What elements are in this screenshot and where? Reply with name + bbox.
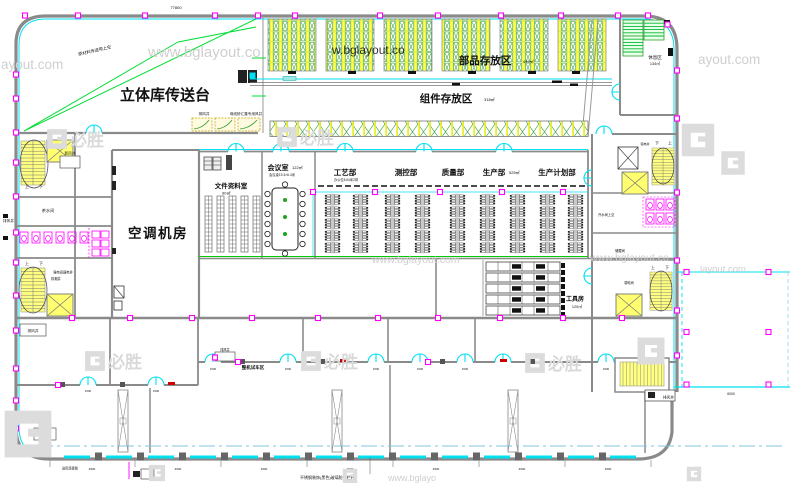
dim-door: 1500 bbox=[462, 367, 469, 371]
label-dept-production-area: 525㎡ bbox=[509, 169, 520, 175]
label-tool-room-area: 120㎡ bbox=[572, 304, 582, 309]
bench-icon bbox=[644, 20, 664, 40]
cad-floorplan: 立体库传送台 原材料传送带上空 部品存放区 449㎡ 组件存放区 318㎡ 休息… bbox=[0, 0, 791, 483]
note-duct: 送风连接管 bbox=[62, 466, 78, 471]
door-icon bbox=[368, 354, 384, 362]
floorplan-drawing: 立体库传送台 原材料传送带上空 部品存放区 449㎡ 组件存放区 318㎡ 休息… bbox=[0, 0, 791, 483]
label-exhaust-shaft: 排风井 bbox=[198, 111, 209, 116]
dim-annex: 6000 bbox=[727, 392, 735, 396]
watermark-url: ayout.com bbox=[1, 57, 63, 72]
label-exhaust-shaft: 排风井 bbox=[3, 218, 14, 223]
brand-logo-icon bbox=[343, 469, 357, 483]
rest-area-room bbox=[612, 16, 677, 115]
label-dept-quality: 质量部 bbox=[442, 167, 465, 177]
dim-bay: 4500 bbox=[175, 467, 182, 471]
shelf-icon bbox=[253, 196, 260, 252]
right-annex bbox=[674, 270, 790, 388]
label-meeting-room-area: 122㎡ bbox=[292, 164, 303, 170]
label-tea-room: 茶水间 bbox=[42, 207, 55, 214]
brand-logo-icon bbox=[5, 411, 52, 458]
brand-logo-icon bbox=[525, 353, 545, 373]
watermark-brand: 必胜 bbox=[69, 130, 104, 150]
watermark-brand: 必胜 bbox=[299, 128, 334, 148]
dim-bay: 4500 bbox=[433, 467, 440, 471]
parts-storage-racks bbox=[268, 19, 606, 74]
door-icon bbox=[148, 377, 164, 385]
busbar-shaft-boxes bbox=[192, 118, 260, 131]
door-icon bbox=[496, 144, 512, 152]
toilet-fixtures bbox=[20, 228, 109, 258]
door-icon bbox=[612, 84, 620, 100]
dim-door: 1500 bbox=[285, 367, 292, 371]
label-exhaust-shaft: 排风井 bbox=[663, 395, 674, 400]
watermark-brand: 必胜 bbox=[107, 352, 142, 372]
door-icon bbox=[457, 354, 473, 362]
door-icon bbox=[598, 354, 614, 362]
dim-bay: 4500 bbox=[261, 467, 268, 471]
conveyor-platform-area bbox=[16, 16, 266, 133]
label-fresh-air-shaft: 新风井 bbox=[64, 151, 75, 156]
brand-logo-icon bbox=[47, 129, 67, 149]
label-dept-measurement: 测控部 bbox=[395, 167, 418, 177]
rack-icon bbox=[486, 273, 560, 282]
label-exhaust-shaft: 排风井 bbox=[220, 347, 230, 352]
label-dept-planning: 生产计划部 bbox=[538, 167, 576, 177]
label-test-area: 整机试车区 bbox=[242, 364, 265, 371]
door-icon bbox=[280, 354, 296, 362]
label-water-room: 开水间上空 bbox=[598, 212, 615, 217]
meeting-room-furniture bbox=[265, 182, 305, 256]
watermark-url: layout.com bbox=[700, 264, 746, 275]
elevator-icon bbox=[616, 294, 642, 316]
rack-icon bbox=[486, 306, 560, 315]
rack-icon bbox=[486, 262, 560, 271]
toilet-fixtures bbox=[643, 197, 675, 227]
dim-bay: 4500 bbox=[605, 467, 612, 471]
document-room bbox=[204, 155, 260, 252]
louver-icon bbox=[118, 390, 128, 452]
rack-icon bbox=[486, 284, 560, 293]
brand-logo-icon bbox=[301, 351, 321, 371]
watermark-url: w.bglayout.co bbox=[331, 43, 405, 57]
watermark-url: ayout.com bbox=[698, 52, 760, 67]
stair-up: 上 bbox=[25, 183, 29, 189]
brand-logo-icon bbox=[682, 124, 714, 156]
office-belt bbox=[199, 144, 676, 259]
dim-door: 1500 bbox=[417, 367, 424, 371]
stair-down: 下 bbox=[39, 261, 43, 266]
label-rest-area-size: 134㎡ bbox=[650, 61, 660, 66]
stairs-icon bbox=[21, 141, 45, 185]
label-dept-production: 生产部 bbox=[483, 167, 506, 177]
stair-down: 下 bbox=[39, 184, 43, 189]
label-conveyor-platform: 立体库传送台 bbox=[120, 86, 210, 104]
label-document-room-area: 90㎡ bbox=[222, 190, 230, 196]
brand-logo-icon bbox=[149, 465, 165, 481]
label-busbar-shaft: 母线桥汇集专用风井 bbox=[230, 111, 263, 116]
brand-logo-icon bbox=[638, 338, 665, 365]
bench-icon bbox=[623, 36, 643, 56]
label-component-storage-area: 318㎡ bbox=[484, 96, 495, 102]
note-meeting-room: 会议桌19.3×6.4米 bbox=[269, 172, 296, 177]
dim-top: 77800 bbox=[170, 5, 182, 10]
brand-logo-icon bbox=[687, 467, 701, 481]
dim-bay: 4500 bbox=[89, 467, 96, 471]
label-exhaust-shaft: 排风井 bbox=[27, 328, 38, 333]
label-document-room: 文件资料室 bbox=[214, 181, 248, 190]
label-strong-electric: 强电井 bbox=[640, 141, 649, 146]
dim-door: 1500 bbox=[603, 367, 610, 371]
shelf-icon bbox=[241, 196, 248, 252]
dim-door: 1500 bbox=[153, 389, 160, 393]
office-desk-clusters bbox=[325, 194, 584, 253]
louver-icon bbox=[508, 390, 518, 452]
door-icon bbox=[584, 268, 592, 284]
label-parts-storage: 部品存放区 bbox=[459, 54, 512, 67]
watermark-brand: 必胜 bbox=[323, 352, 358, 372]
shelf-icon bbox=[229, 196, 236, 252]
note-dept-process: 办公位8.64米2排 bbox=[334, 177, 359, 182]
watermarks: www.bglayout.co ayout.com ayout.com w.bg… bbox=[1, 43, 760, 483]
shelf-icon bbox=[205, 196, 212, 252]
label-smoke-shaft: 排烟井 bbox=[51, 276, 62, 281]
label-weak-electric: 弱电间 bbox=[624, 280, 634, 285]
elevator-icon bbox=[622, 172, 648, 194]
watermark-url: www.bglayo bbox=[387, 473, 436, 483]
dim-bay: 4500 bbox=[519, 467, 526, 471]
dim-door: 1500 bbox=[210, 367, 217, 371]
label-dept-process: 工艺部 bbox=[334, 167, 357, 177]
tool-room bbox=[436, 258, 565, 318]
label-parts-storage-area: 449㎡ bbox=[523, 58, 534, 64]
door-icon bbox=[337, 144, 353, 152]
louver-icon bbox=[332, 390, 342, 452]
label-tool-room: 工具房 bbox=[566, 295, 584, 303]
stair-down: 下 bbox=[655, 141, 659, 146]
dim-door: 1500 bbox=[85, 389, 92, 393]
shelf-icon bbox=[217, 196, 224, 252]
stair-up: 上 bbox=[651, 264, 655, 270]
label-hvac-room: 空调机房 bbox=[128, 225, 188, 241]
watermark-url: www.bglayout.co bbox=[589, 252, 669, 264]
rack-icon bbox=[486, 295, 560, 304]
dim-door: 1500 bbox=[373, 367, 380, 371]
door-icon bbox=[228, 144, 244, 152]
brand-logo-icon bbox=[85, 351, 105, 371]
note-raw-material: 原材料传送带上空 bbox=[78, 43, 112, 57]
label-component-storage: 组件存放区 bbox=[420, 92, 473, 105]
stair-down: 下 bbox=[665, 265, 669, 270]
stair-up: 上 bbox=[668, 140, 672, 146]
label-electrical-shaft: 强电间弱电井 bbox=[53, 270, 73, 275]
door-icon bbox=[416, 144, 432, 152]
brand-logo-icon bbox=[277, 127, 297, 147]
stairs-icon bbox=[21, 268, 45, 312]
label-meeting-room: 会议室 bbox=[268, 163, 289, 172]
watermark-url: www.bglayout.com bbox=[371, 254, 460, 266]
brand-logo-icon bbox=[721, 151, 744, 174]
door-icon bbox=[80, 377, 96, 385]
label-rest-area: 休息区 bbox=[648, 54, 662, 61]
watermark-url: www.bglayout.co bbox=[147, 44, 261, 61]
elevator-icon bbox=[47, 294, 73, 316]
watermark-brand: 必胜 bbox=[547, 354, 582, 374]
door-icon bbox=[596, 126, 612, 134]
stair-up: 上 bbox=[25, 260, 29, 266]
